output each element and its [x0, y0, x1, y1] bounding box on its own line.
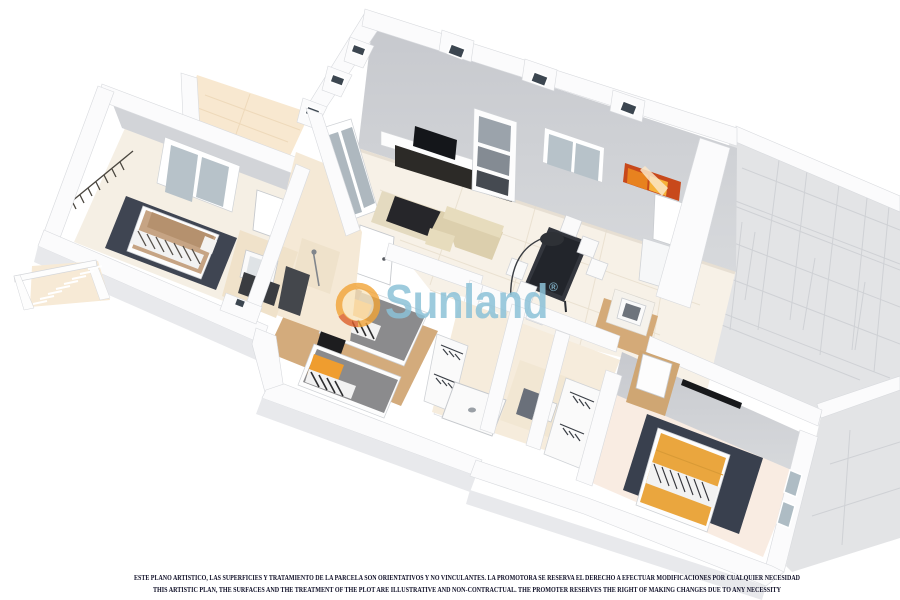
svg-text:THIS ARTISTIC PLAN, THE SURFAC: THIS ARTISTIC PLAN, THE SURFACES AND THE… — [153, 585, 782, 594]
svg-text:®: ® — [549, 280, 558, 294]
svg-text:ESTE PLANO ARTISTICO, LAS SUPE: ESTE PLANO ARTISTICO, LAS SUPERFICIES Y … — [134, 573, 800, 582]
svg-text:Sunland: Sunland — [385, 276, 548, 329]
